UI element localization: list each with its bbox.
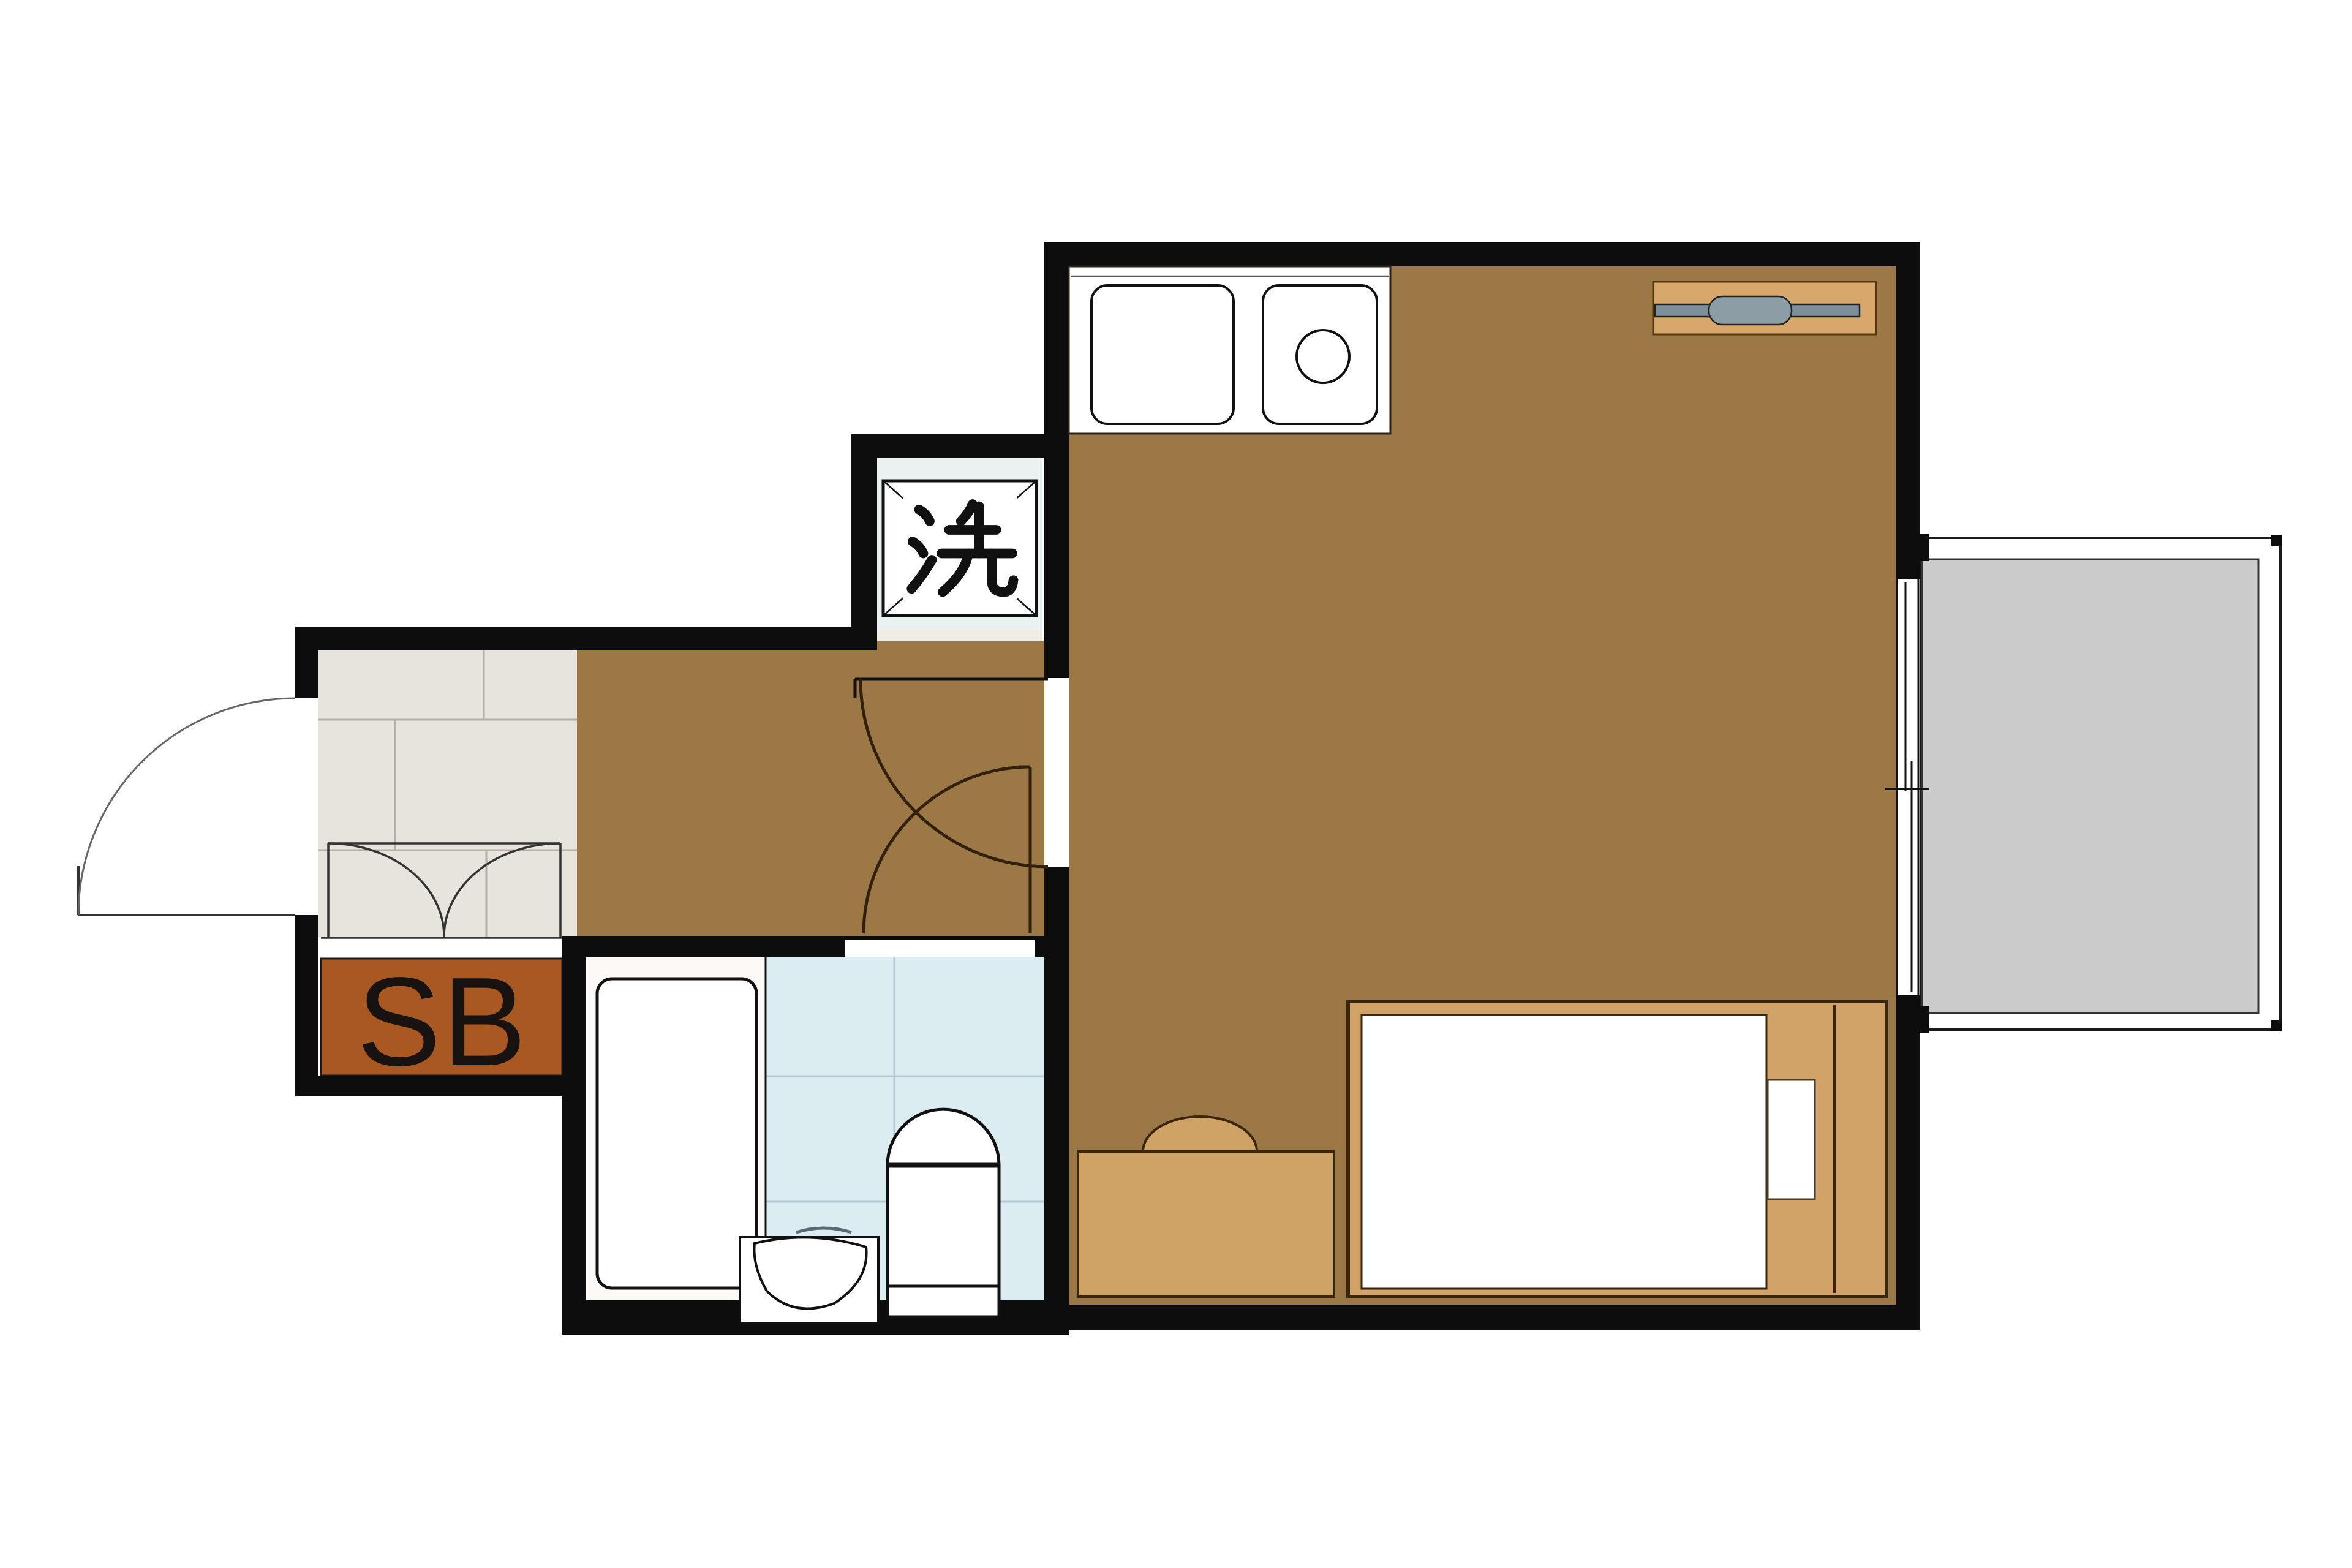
svg-text:SB: SB — [357, 951, 528, 1092]
